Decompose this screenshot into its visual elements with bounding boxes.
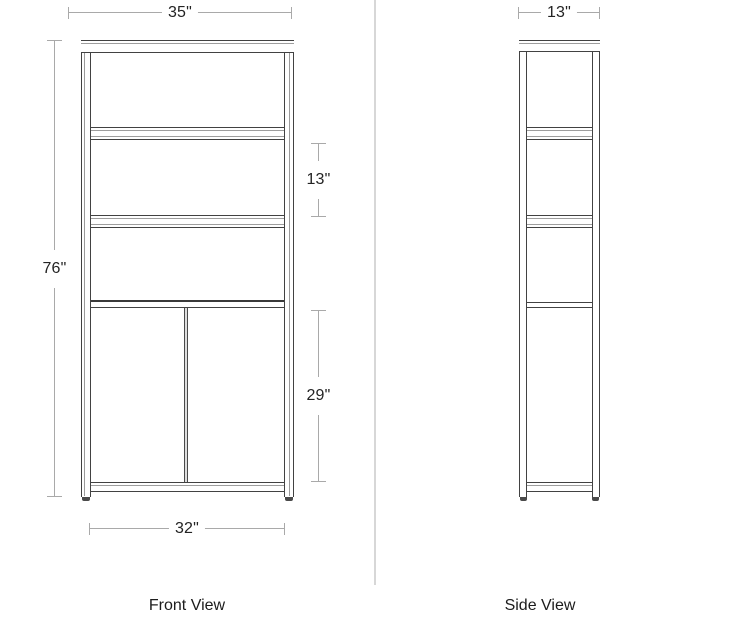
front-shelf-1 bbox=[91, 127, 284, 140]
dim-front-door-height: 29" bbox=[311, 310, 326, 482]
dim-tick bbox=[311, 143, 326, 144]
dim-tick bbox=[47, 496, 62, 497]
dim-tick bbox=[311, 481, 326, 482]
front-left-leg bbox=[81, 40, 91, 497]
side-view-label: Side View bbox=[505, 597, 576, 615]
front-left-foot bbox=[82, 497, 90, 501]
dim-front-base-width-value: 32" bbox=[169, 520, 205, 538]
dim-tick bbox=[284, 523, 285, 535]
dim-front-base-width: 32" bbox=[89, 523, 285, 535]
side-right-foot bbox=[592, 497, 599, 501]
dim-tick bbox=[47, 40, 62, 41]
dim-tick bbox=[291, 7, 292, 19]
dim-tick bbox=[311, 310, 326, 311]
dim-tick bbox=[68, 7, 69, 19]
side-right-leg bbox=[592, 40, 600, 497]
dim-tick bbox=[599, 7, 600, 19]
dim-tick bbox=[311, 216, 326, 217]
front-bottom-rail bbox=[91, 482, 284, 492]
side-desk-surface bbox=[527, 302, 592, 308]
side-left-leg bbox=[519, 40, 527, 497]
side-shelf-1 bbox=[527, 127, 592, 140]
front-door-divider bbox=[184, 308, 188, 482]
dimension-diagram: 35" 76" 13" 29" 32" 13" Front View Side … bbox=[0, 0, 750, 637]
front-top-rail bbox=[81, 40, 294, 53]
dim-front-shelf-spacing-value: 13" bbox=[301, 161, 335, 199]
dim-front-height-left-value: 76" bbox=[37, 250, 71, 288]
dim-side-depth-top: 13" bbox=[518, 7, 600, 19]
dim-front-width-top-value: 35" bbox=[162, 4, 198, 22]
side-shelf-2 bbox=[527, 215, 592, 228]
panel-divider-line bbox=[374, 0, 376, 585]
dim-front-width-top: 35" bbox=[68, 7, 292, 19]
front-left-leg-inner-line bbox=[84, 41, 85, 496]
front-desk-surface bbox=[91, 300, 284, 308]
side-bottom-rail bbox=[527, 482, 592, 492]
front-view-label: Front View bbox=[149, 597, 225, 615]
dim-tick bbox=[89, 523, 90, 535]
dim-tick bbox=[518, 7, 519, 19]
side-left-foot bbox=[520, 497, 527, 501]
dim-front-height-left: 76" bbox=[47, 40, 62, 497]
front-right-foot bbox=[285, 497, 293, 501]
dim-front-door-height-value: 29" bbox=[301, 377, 335, 415]
dim-side-depth-top-value: 13" bbox=[541, 4, 577, 22]
side-top-rail bbox=[519, 40, 600, 52]
front-right-leg-inner-line bbox=[289, 41, 290, 496]
front-shelf-2 bbox=[91, 215, 284, 228]
dim-front-shelf-spacing: 13" bbox=[311, 143, 326, 217]
